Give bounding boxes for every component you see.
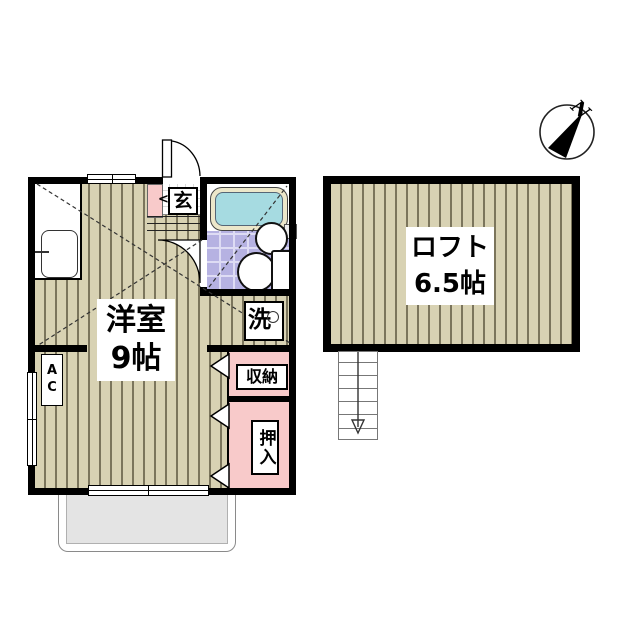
entrance-label-text: 玄	[173, 192, 192, 211]
room-name: 洋室	[106, 302, 166, 340]
floor-plan: N 玄 < 洗 AC 収納 押入 洋室 9帖 ロフト 6.5帖	[0, 0, 640, 640]
storage-label: 収納	[236, 364, 288, 390]
room-size: 9帖	[111, 340, 162, 378]
loft-label: ロフト 6.5帖	[406, 227, 494, 305]
washer-faucet-icon	[267, 311, 279, 323]
storage-label-text: 収納	[246, 369, 278, 385]
entrance-arrow: <	[158, 192, 169, 207]
folding-door-chevron	[211, 464, 229, 488]
entrance-label: 玄	[168, 187, 198, 215]
bathroom-door-swing	[158, 240, 200, 283]
washer-box: 洗	[244, 301, 284, 341]
entrance-door-leaf	[163, 140, 172, 177]
ac-unit-text: AC	[46, 363, 59, 397]
ac-unit-label: AC	[41, 354, 63, 406]
bathroom-diagonal-line	[209, 186, 287, 287]
entrance-arrow-glyph: <	[158, 192, 169, 207]
room-label: 洋室 9帖	[97, 299, 175, 381]
futon-closet-text: 押入	[257, 429, 274, 467]
folding-door-chevron	[211, 354, 229, 378]
linework-overlay: N	[0, 0, 640, 640]
loft-name: ロフト	[411, 230, 489, 266]
loft-size: 6.5帖	[414, 266, 486, 302]
folding-door-chevron	[211, 404, 229, 428]
futon-closet-label: 押入	[251, 420, 279, 475]
entrance-door-swing	[172, 141, 200, 176]
